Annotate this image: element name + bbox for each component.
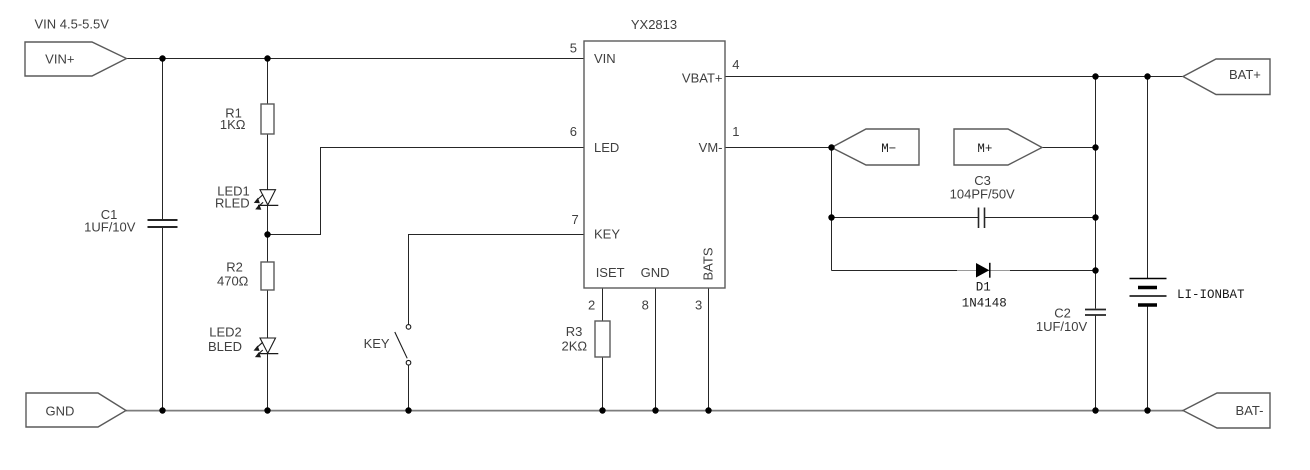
svg-text:GND: GND — [641, 265, 670, 280]
svg-text:470Ω: 470Ω — [217, 274, 249, 289]
svg-text:1N4148: 1N4148 — [962, 296, 1007, 310]
svg-text:D1: D1 — [976, 281, 991, 295]
svg-text:5: 5 — [570, 41, 577, 56]
svg-text:104PF/50V: 104PF/50V — [950, 186, 1015, 201]
svg-text:2: 2 — [588, 298, 595, 313]
svg-text:1KΩ: 1KΩ — [220, 117, 246, 132]
svg-text:8: 8 — [642, 298, 649, 313]
svg-text:1: 1 — [732, 124, 739, 139]
svg-text:2KΩ: 2KΩ — [561, 339, 587, 354]
svg-text:GND: GND — [46, 404, 75, 419]
svg-text:6: 6 — [570, 124, 577, 139]
svg-text:3: 3 — [695, 298, 702, 313]
svg-text:KEY: KEY — [594, 227, 620, 242]
svg-text:VIN+: VIN+ — [45, 52, 74, 67]
svg-text:1UF/10V: 1UF/10V — [84, 220, 136, 235]
svg-text:LED2: LED2 — [209, 325, 242, 340]
svg-text:YX2813: YX2813 — [631, 17, 677, 32]
svg-text:4: 4 — [732, 57, 739, 72]
svg-text:VBAT+: VBAT+ — [682, 70, 723, 85]
svg-text:RLED: RLED — [215, 196, 250, 211]
svg-text:BATS: BATS — [701, 247, 716, 280]
svg-text:VIN 4.5-5.5V: VIN 4.5-5.5V — [35, 17, 110, 32]
svg-text:R2: R2 — [226, 260, 243, 275]
svg-text:LED: LED — [594, 140, 619, 155]
svg-text:VIN: VIN — [594, 51, 616, 66]
svg-text:ISET: ISET — [596, 265, 625, 280]
svg-text:1UF/10V: 1UF/10V — [1036, 319, 1088, 334]
svg-text:BLED: BLED — [208, 339, 242, 354]
svg-text:BAT-: BAT- — [1236, 403, 1264, 418]
svg-text:KEY: KEY — [364, 336, 390, 351]
svg-text:VM-: VM- — [699, 140, 723, 155]
svg-text:LI-IONBAT: LI-IONBAT — [1177, 288, 1245, 302]
svg-text:7: 7 — [571, 212, 578, 227]
svg-text:BAT+: BAT+ — [1229, 67, 1261, 82]
svg-text:M−: M− — [881, 142, 896, 156]
svg-text:M+: M+ — [977, 142, 992, 156]
svg-text:R3: R3 — [566, 324, 583, 339]
